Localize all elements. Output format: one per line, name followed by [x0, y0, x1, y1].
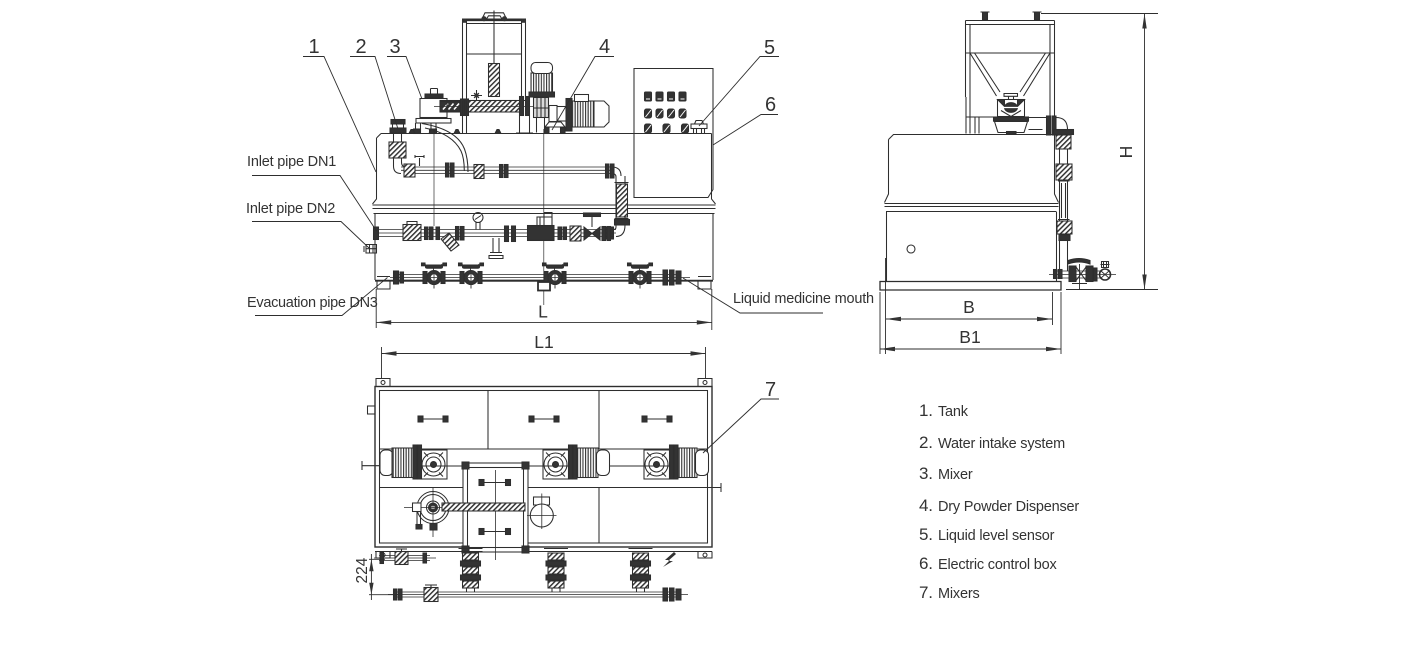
svg-text:Inlet pipe DN2: Inlet pipe DN2 [246, 201, 335, 217]
svg-text:B1: B1 [959, 327, 980, 347]
svg-text:5.: 5. [919, 525, 933, 544]
svg-text:2: 2 [355, 36, 366, 58]
svg-text:H: H [1116, 146, 1136, 159]
svg-text:1.: 1. [919, 401, 933, 420]
svg-text:4.: 4. [919, 496, 933, 515]
svg-text:Dry Powder Dispenser: Dry Powder Dispenser [938, 499, 1079, 515]
svg-text:Mixers: Mixers [938, 586, 980, 602]
svg-text:L: L [538, 302, 548, 322]
svg-text:224: 224 [354, 557, 371, 583]
svg-text:B: B [963, 297, 975, 317]
svg-text:5: 5 [764, 37, 775, 59]
svg-text:1: 1 [308, 36, 319, 58]
svg-text:L1: L1 [534, 332, 553, 352]
svg-text:7.: 7. [919, 583, 933, 602]
svg-text:3: 3 [389, 36, 400, 58]
svg-text:Water intake system: Water intake system [938, 436, 1065, 452]
svg-text:Tank: Tank [938, 404, 969, 420]
svg-text:Evacuation pipe DN3: Evacuation pipe DN3 [247, 295, 378, 311]
svg-text:Liquid medicine mouth: Liquid medicine mouth [733, 291, 874, 307]
svg-text:6: 6 [765, 94, 776, 116]
svg-text:4: 4 [599, 36, 610, 58]
svg-text:Inlet pipe DN1: Inlet pipe DN1 [247, 154, 336, 170]
svg-text:Mixer: Mixer [938, 467, 973, 483]
svg-text:2.: 2. [919, 433, 933, 452]
svg-text:Electric control box: Electric control box [938, 557, 1057, 573]
svg-text:Liquid level sensor: Liquid level sensor [938, 528, 1055, 544]
svg-text:6.: 6. [919, 554, 933, 573]
svg-text:7: 7 [765, 379, 776, 401]
svg-text:3.: 3. [919, 464, 933, 483]
